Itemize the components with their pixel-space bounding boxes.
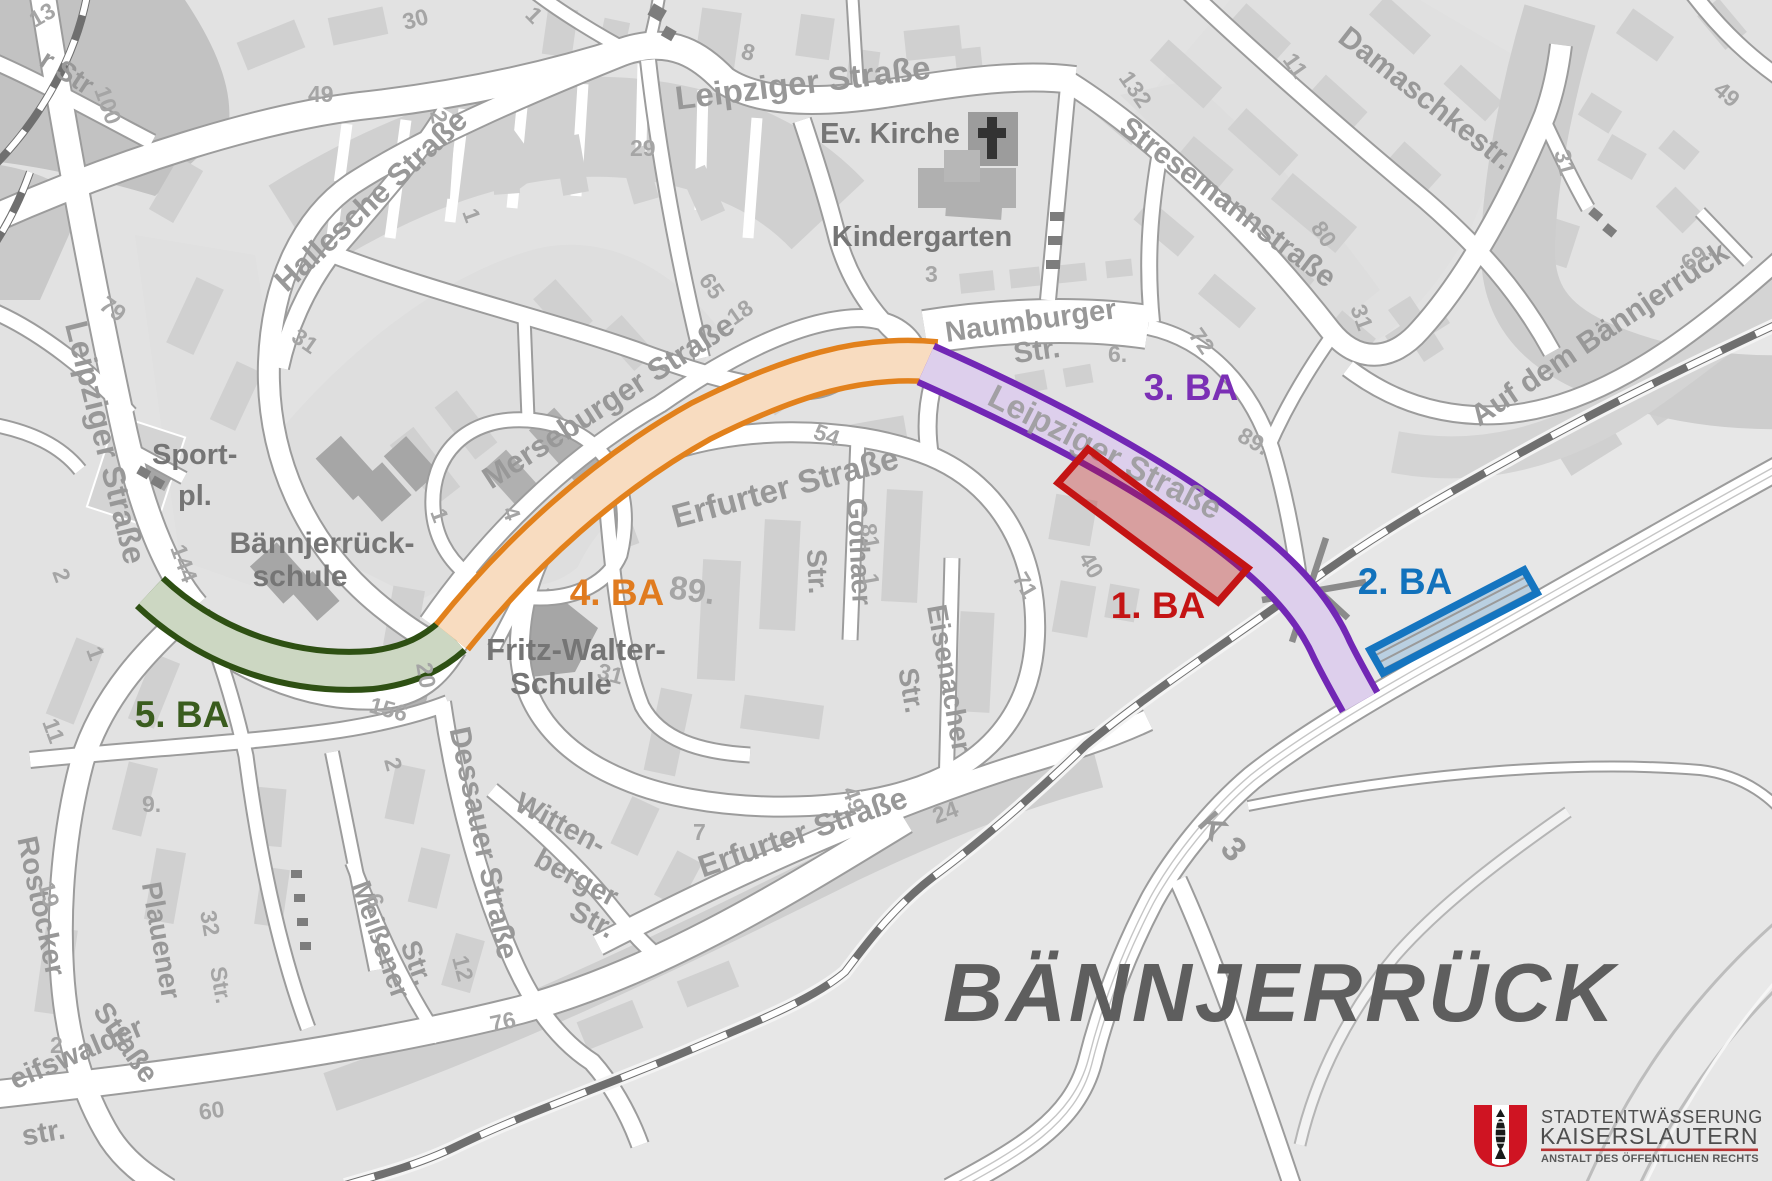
svg-text:60: 60: [197, 1096, 226, 1125]
svg-text:Bännjerrück-: Bännjerrück-: [229, 527, 414, 560]
svg-text:7: 7: [693, 819, 706, 845]
svg-text:BÄNNJERRÜCK: BÄNNJERRÜCK: [943, 946, 1619, 1039]
svg-text:Kindergarten: Kindergarten: [832, 221, 1012, 253]
svg-text:4. BA: 4. BA: [570, 572, 665, 613]
svg-text:Str.: Str.: [1011, 332, 1062, 370]
svg-text:Sport-: Sport-: [152, 439, 237, 471]
svg-text:2: 2: [50, 1032, 63, 1058]
svg-text:5. BA: 5. BA: [135, 694, 230, 735]
svg-text:6.: 6.: [1108, 341, 1127, 367]
svg-text:pl.: pl.: [178, 480, 212, 512]
svg-text:Str.: Str.: [801, 548, 834, 595]
svg-text:32: 32: [195, 908, 225, 938]
svg-text:Schule: Schule: [510, 666, 612, 701]
svg-text:9.: 9.: [142, 791, 161, 817]
svg-text:76: 76: [488, 1006, 518, 1037]
svg-text:89.: 89.: [667, 568, 718, 611]
svg-text:Fritz-Walter-: Fritz-Walter-: [486, 632, 666, 667]
svg-text:ANSTALT DES ÖFFENTLICHEN RECHT: ANSTALT DES ÖFFENTLICHEN RECHTS: [1541, 1152, 1759, 1165]
svg-text:2. BA: 2. BA: [1358, 561, 1453, 602]
svg-text:29: 29: [630, 135, 656, 161]
svg-text:KAISERSLAUTERN: KAISERSLAUTERN: [1540, 1123, 1758, 1149]
svg-text:20: 20: [411, 660, 441, 690]
svg-text:Ev. Kirche: Ev. Kirche: [820, 118, 960, 150]
svg-text:Gothaer: Gothaer: [841, 497, 878, 606]
svg-text:81: 81: [855, 521, 885, 551]
svg-text:49: 49: [308, 81, 334, 107]
svg-text:1. BA: 1. BA: [1111, 585, 1206, 626]
svg-text:3: 3: [925, 261, 938, 287]
svg-text:3. BA: 3. BA: [1144, 367, 1239, 408]
svg-text:schule: schule: [252, 560, 347, 593]
